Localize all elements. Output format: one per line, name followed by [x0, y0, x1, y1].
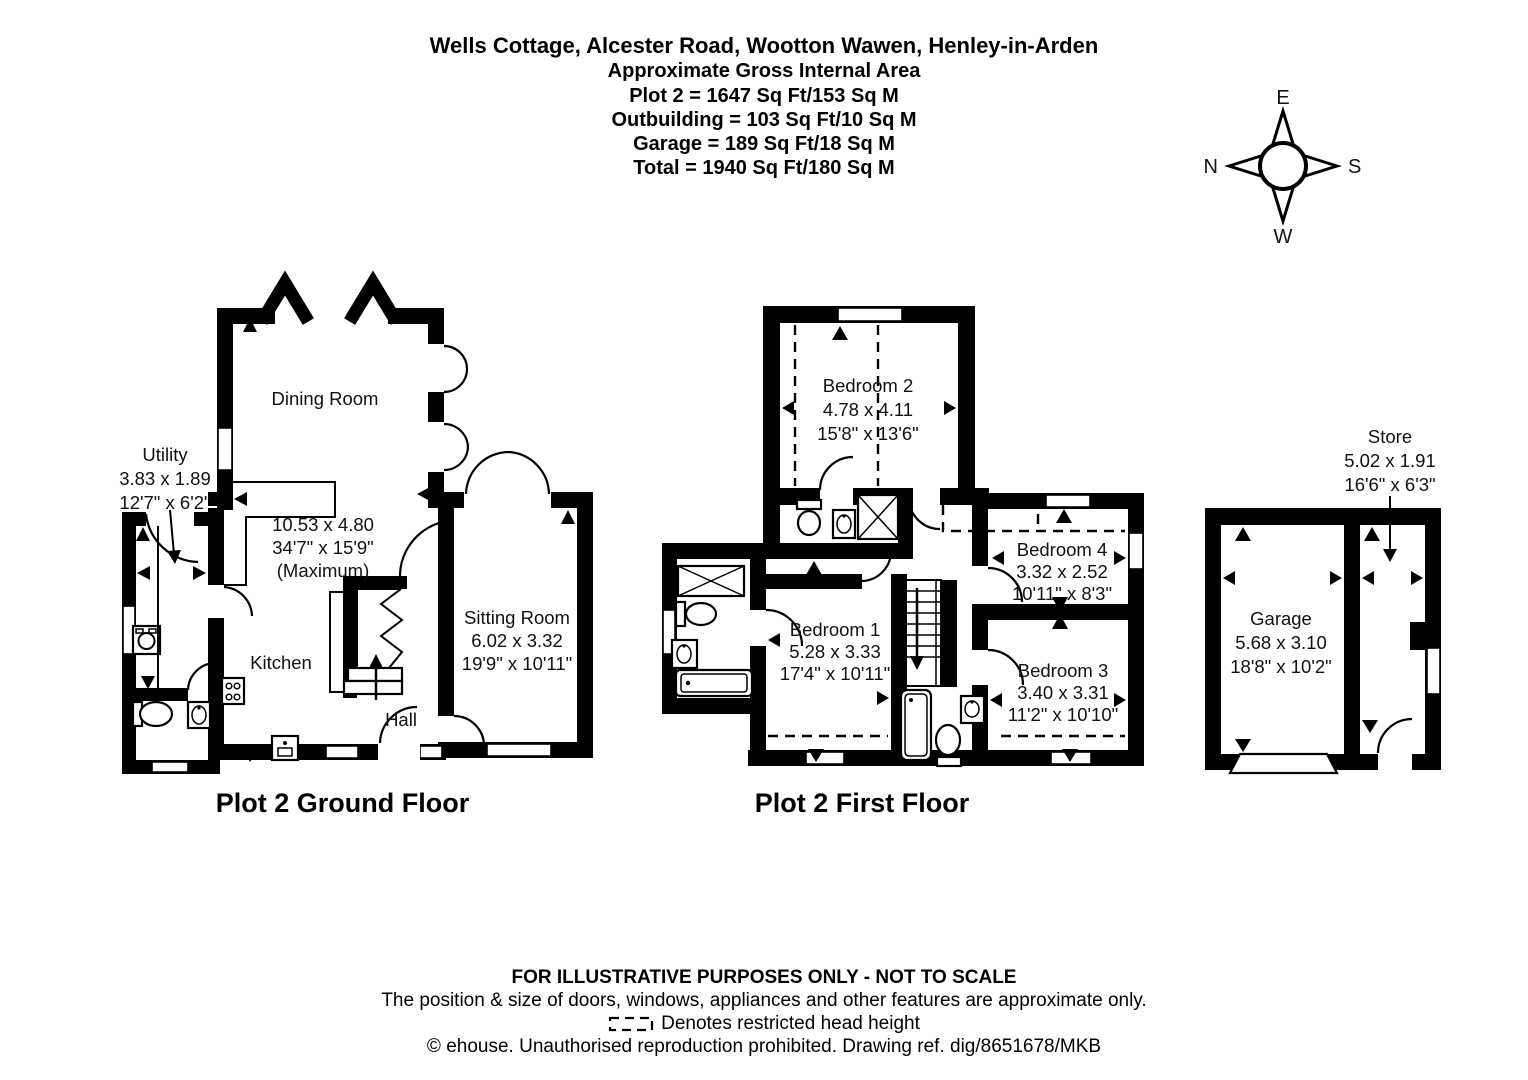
overall-imperial: 34'7" x 15'9" [272, 537, 373, 558]
store-leader-arrow [1383, 496, 1397, 562]
compass-icon [1229, 111, 1337, 221]
sitting-room-label: Sitting Room [464, 607, 570, 628]
bedroom1-imperial: 17'4" x 10'11" [780, 663, 890, 684]
store-imperial: 16'6" x 6'3" [1344, 474, 1435, 495]
wc-toilet-icon [133, 702, 172, 726]
bathroom-toilet-icon [936, 725, 961, 766]
compass-rose: E S W N [1195, 88, 1375, 258]
bedroom1-metric: 5.28 x 3.33 [789, 641, 881, 662]
ground-floor-roof-chevrons [265, 283, 393, 316]
compass-top-label: E [1276, 88, 1289, 109]
floorplan-page: Wells Cottage, Alcester Road, Wootton Wa… [0, 0, 1528, 1080]
ensuite-sink-icon [672, 640, 697, 668]
bedroom4-label: Bedroom 4 [1017, 539, 1108, 560]
bedroom2-metric: 4.78 x 4.11 [823, 399, 913, 420]
footer-legend-text: Denotes restricted head height [661, 1012, 920, 1035]
ensuite-shower-icon [678, 566, 744, 596]
ensuite-toilet-icon [676, 602, 716, 626]
bedroom4-metric: 3.32 x 2.52 [1016, 561, 1108, 582]
compass-left-label: N [1204, 156, 1218, 178]
garage-label: Garage [1250, 608, 1312, 629]
first-floor-caption: Plot 2 First Floor [650, 788, 1074, 819]
footer-copyright: © ehouse. Unauthorised reproduction proh… [0, 1035, 1528, 1058]
bedroom2-imperial: 15'8" x 13'6" [817, 423, 918, 444]
area-subtitle: Approximate Gross Internal Area [0, 59, 1528, 84]
compass-right-label: S [1348, 156, 1361, 178]
bedroom3-label: Bedroom 3 [1018, 660, 1109, 681]
shower-room-shower-icon [858, 495, 898, 539]
store-metric: 5.02 x 1.91 [1344, 450, 1436, 471]
footer-legend-row: Denotes restricted head height [0, 1012, 1528, 1035]
kitchen-label: Kitchen [250, 652, 312, 673]
footer-disclaimer: FOR ILLUSTRATIVE PURPOSES ONLY - NOT TO … [0, 966, 1528, 989]
outbuilding-plan: Store 5.02 x 1.91 16'6" x 6'3" Garage 5.… [1195, 420, 1445, 788]
store-label: Store [1368, 426, 1412, 447]
footer-approximate-note: The position & size of doors, windows, a… [0, 989, 1528, 1012]
shower-room-toilet-icon [797, 500, 821, 535]
bedroom3-metric: 3.40 x 3.31 [1017, 682, 1109, 703]
dining-room-label: Dining Room [272, 388, 379, 409]
compass-bottom-label: W [1274, 226, 1293, 248]
kitchen-sink-icon [272, 736, 298, 760]
bedroom2-label: Bedroom 2 [823, 375, 914, 396]
stove-icon [222, 678, 244, 704]
store-window [1427, 648, 1440, 694]
utility-imperial: 12'7" x 6'2" [119, 492, 210, 513]
bathtub-icon [676, 670, 752, 696]
washing-machine-icon [133, 626, 160, 654]
bedroom1-label: Bedroom 1 [790, 619, 881, 640]
store-door-arc [1378, 719, 1412, 753]
garage-imperial: 18'8" x 10'2" [1230, 656, 1331, 677]
ground-floor-plan: Dining Room Utility 3.83 x 1.89 12'7" x … [115, 268, 605, 788]
hall-label: Hall [385, 709, 417, 730]
property-address: Wells Cottage, Alcester Road, Wootton Wa… [0, 32, 1528, 59]
first-floor-plan: Bedroom 2 4.78 x 4.11 15'8" x 13'6" Bedr… [650, 295, 1155, 775]
bathroom-shower-cubicle-icon [901, 690, 931, 760]
footer-block: FOR ILLUSTRATIVE PURPOSES ONLY - NOT TO … [0, 966, 1528, 1058]
garage-door-icon [1230, 754, 1337, 773]
sitting-room-imperial: 19'9" x 10'11" [462, 653, 572, 674]
overall-note: (Maximum) [277, 560, 370, 581]
bedroom3-imperial: 11'2" x 10'10" [1008, 704, 1118, 725]
utility-label: Utility [142, 444, 188, 465]
sitting-room-metric: 6.02 x 3.32 [471, 630, 563, 651]
bedroom4-imperial: 10'11" x 8'3" [1012, 583, 1112, 604]
utility-metric: 3.83 x 1.89 [119, 468, 211, 489]
bathroom-sink-icon [961, 696, 984, 723]
shower-room-sink-icon [833, 510, 855, 538]
restricted-head-height-legend-icon [608, 1016, 654, 1032]
wc-sink-icon [188, 702, 210, 728]
utility-leader-arrow [167, 510, 181, 564]
overall-metric: 10.53 x 4.80 [272, 514, 374, 535]
ground-floor-caption: Plot 2 Ground Floor [115, 788, 570, 819]
garage-metric: 5.68 x 3.10 [1235, 632, 1327, 653]
